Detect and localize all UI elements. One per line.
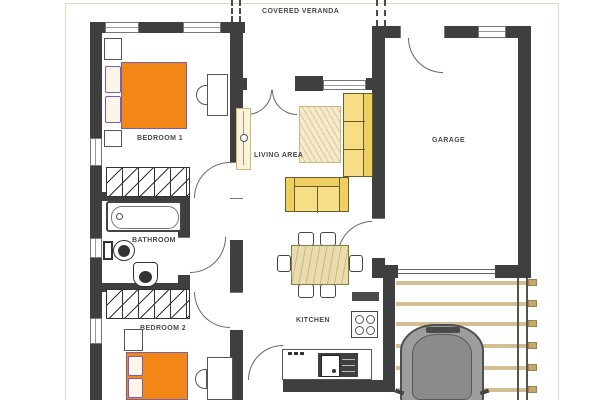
window-bedroom1-left xyxy=(90,138,102,166)
pillow xyxy=(128,356,143,376)
burner xyxy=(355,326,364,335)
toilet-tank xyxy=(103,241,113,260)
dining-chair xyxy=(349,255,363,272)
dining-chair xyxy=(298,284,314,298)
sink-drain xyxy=(332,369,336,373)
nightstand xyxy=(124,329,143,351)
window-bedroom2-left xyxy=(90,318,102,344)
counter-knob xyxy=(294,352,298,355)
sink-bowl xyxy=(321,355,340,377)
pillow xyxy=(128,378,143,398)
car-roofbar xyxy=(426,327,460,333)
veranda-column-line xyxy=(231,0,233,22)
counter-knob xyxy=(300,352,304,355)
pergola-beam xyxy=(396,302,537,306)
stove xyxy=(351,311,378,338)
veranda-column-line xyxy=(239,0,241,22)
burner xyxy=(366,326,375,335)
beam-end xyxy=(528,320,537,327)
wall-hall-west-mid xyxy=(230,240,243,292)
veranda-column-line xyxy=(384,0,386,26)
pillow xyxy=(105,96,121,123)
pergola-beam xyxy=(396,281,537,285)
window-living-north xyxy=(323,80,366,90)
dining-chair xyxy=(320,232,336,246)
bathtub xyxy=(106,201,182,232)
washbasin xyxy=(133,262,158,287)
drainer-line xyxy=(342,359,355,360)
desk-bedroom2 xyxy=(207,357,233,400)
floor-plan: COVERED VERANDA BEDROOM 1 BATHROOM BEDRO… xyxy=(0,0,600,400)
wall-living-north-a xyxy=(230,78,247,90)
burner xyxy=(355,315,364,324)
bathtub-drain xyxy=(116,213,123,220)
washbasin-bowl xyxy=(139,271,152,283)
toilet-seat xyxy=(118,245,130,257)
dining-chair xyxy=(277,255,291,272)
beam-end xyxy=(528,386,537,393)
nightstand xyxy=(104,38,122,60)
label-living-area: LIVING AREA xyxy=(254,152,303,159)
window-bedroom1-top2 xyxy=(183,22,221,33)
dining-table xyxy=(291,245,349,285)
wall-kitchen-south xyxy=(283,380,383,392)
burner xyxy=(366,315,375,324)
sofa-arm xyxy=(286,178,295,211)
door-opening-bedroom2 xyxy=(230,292,243,332)
wall-garage-west xyxy=(372,38,385,218)
wall-garage-top xyxy=(372,26,531,38)
wall-pillar xyxy=(295,76,323,91)
dining-chair xyxy=(298,232,314,246)
car-roof xyxy=(412,334,472,400)
hall-opening xyxy=(230,198,243,242)
kitchen-tall-unit xyxy=(352,292,379,301)
sofa-arm xyxy=(339,178,348,211)
beam-end xyxy=(528,364,537,371)
wardrobe-bedroom2 xyxy=(106,289,190,319)
kitchen-counter xyxy=(282,349,372,380)
pergola-post xyxy=(517,278,519,400)
wall-garage-bottom-left xyxy=(372,265,398,278)
drainer-line xyxy=(342,371,355,372)
sofa-seat-line xyxy=(344,121,365,122)
pillow xyxy=(105,66,121,93)
wardrobe-bedroom1 xyxy=(106,167,190,197)
label-garage: GARAGE xyxy=(432,137,465,144)
pergola-post xyxy=(526,278,528,400)
label-bedroom1: BEDROOM 1 xyxy=(137,135,183,142)
nightstand xyxy=(104,130,122,147)
sofa-loveseat xyxy=(285,177,349,212)
garage-door xyxy=(398,267,495,276)
beam-end xyxy=(528,279,537,286)
sofa-back xyxy=(363,94,372,176)
sink-unit xyxy=(318,353,358,377)
window-bedroom1-top xyxy=(105,22,139,33)
door-opening-garage-entry xyxy=(400,26,445,38)
dining-chair xyxy=(320,284,336,298)
door-opening-bathroom xyxy=(178,237,190,277)
rug xyxy=(299,106,341,163)
car xyxy=(400,324,484,400)
wall-kitchen-east xyxy=(383,278,395,392)
bed-bedroom1 xyxy=(121,62,187,129)
label-bedroom2: BEDROOM 2 xyxy=(140,325,186,332)
window-garage-top xyxy=(478,26,506,38)
desk-bedroom1 xyxy=(207,74,228,116)
beam-end xyxy=(528,300,537,307)
sofa-seat-line xyxy=(344,149,365,150)
console-table xyxy=(236,108,251,170)
beam-end xyxy=(528,342,537,349)
veranda-column-line xyxy=(376,0,378,26)
window-bathroom-left xyxy=(90,238,102,258)
wall-garage-bottom-right xyxy=(495,265,531,278)
pergola-beam xyxy=(396,322,537,326)
label-covered-veranda: COVERED VERANDA xyxy=(262,8,339,15)
label-bathroom: BATHROOM xyxy=(132,237,176,244)
counter-knob xyxy=(288,352,292,355)
console-knob xyxy=(240,134,248,142)
label-kitchen: KITCHEN xyxy=(296,317,330,324)
sofa-seat-line xyxy=(317,186,318,213)
door-opening-garage-dining xyxy=(372,218,385,260)
sofa-three-seater xyxy=(343,93,373,177)
drainer-line xyxy=(342,365,355,366)
wall-garage-east xyxy=(518,26,531,278)
